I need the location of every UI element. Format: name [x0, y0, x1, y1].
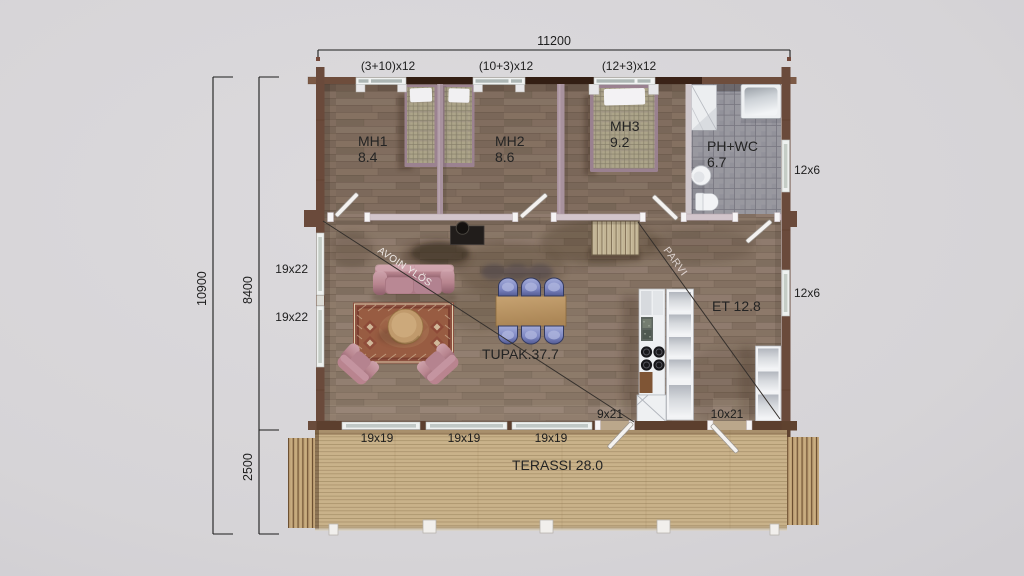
svg-text:MH3: MH3: [610, 118, 640, 134]
svg-text:11200: 11200: [537, 34, 571, 48]
svg-text:(12+3)x12: (12+3)x12: [602, 59, 657, 73]
svg-text:12x6: 12x6: [794, 286, 820, 300]
svg-text:19x19: 19x19: [361, 431, 394, 445]
svg-text:19x22: 19x22: [275, 310, 308, 324]
svg-text:12x6: 12x6: [794, 163, 820, 177]
svg-text:MH2: MH2: [495, 133, 525, 149]
svg-text:MH1: MH1: [358, 133, 388, 149]
svg-text:TUPAK.37.7: TUPAK.37.7: [482, 346, 559, 362]
svg-text:(10+3)x12: (10+3)x12: [479, 59, 534, 73]
svg-text:PH+WC: PH+WC: [707, 138, 758, 154]
svg-text:19x19: 19x19: [535, 431, 568, 445]
svg-text:(3+10)x12: (3+10)x12: [361, 59, 416, 73]
svg-text:ET 12.8: ET 12.8: [712, 298, 761, 314]
svg-text:TERASSI 28.0: TERASSI 28.0: [512, 457, 603, 473]
svg-text:10900: 10900: [195, 271, 209, 306]
svg-text:10x21: 10x21: [711, 407, 744, 421]
svg-text:8400: 8400: [241, 276, 255, 304]
svg-text:2500: 2500: [241, 453, 255, 481]
svg-text:9.2: 9.2: [610, 134, 630, 150]
svg-text:6.7: 6.7: [707, 154, 727, 170]
svg-text:19x19: 19x19: [448, 431, 481, 445]
svg-text:8.4: 8.4: [358, 149, 378, 165]
svg-text:8.6: 8.6: [495, 149, 515, 165]
svg-text:19x22: 19x22: [275, 262, 308, 276]
svg-text:9x21: 9x21: [597, 407, 623, 421]
